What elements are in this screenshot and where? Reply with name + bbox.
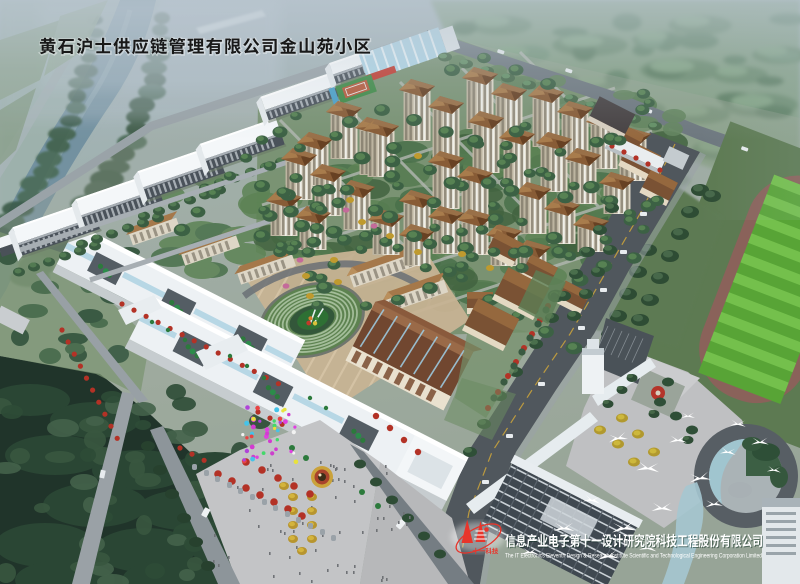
svg-text:The IT Electronics Eleventh De: The IT Electronics Eleventh Design & Res… bbox=[505, 553, 762, 560]
